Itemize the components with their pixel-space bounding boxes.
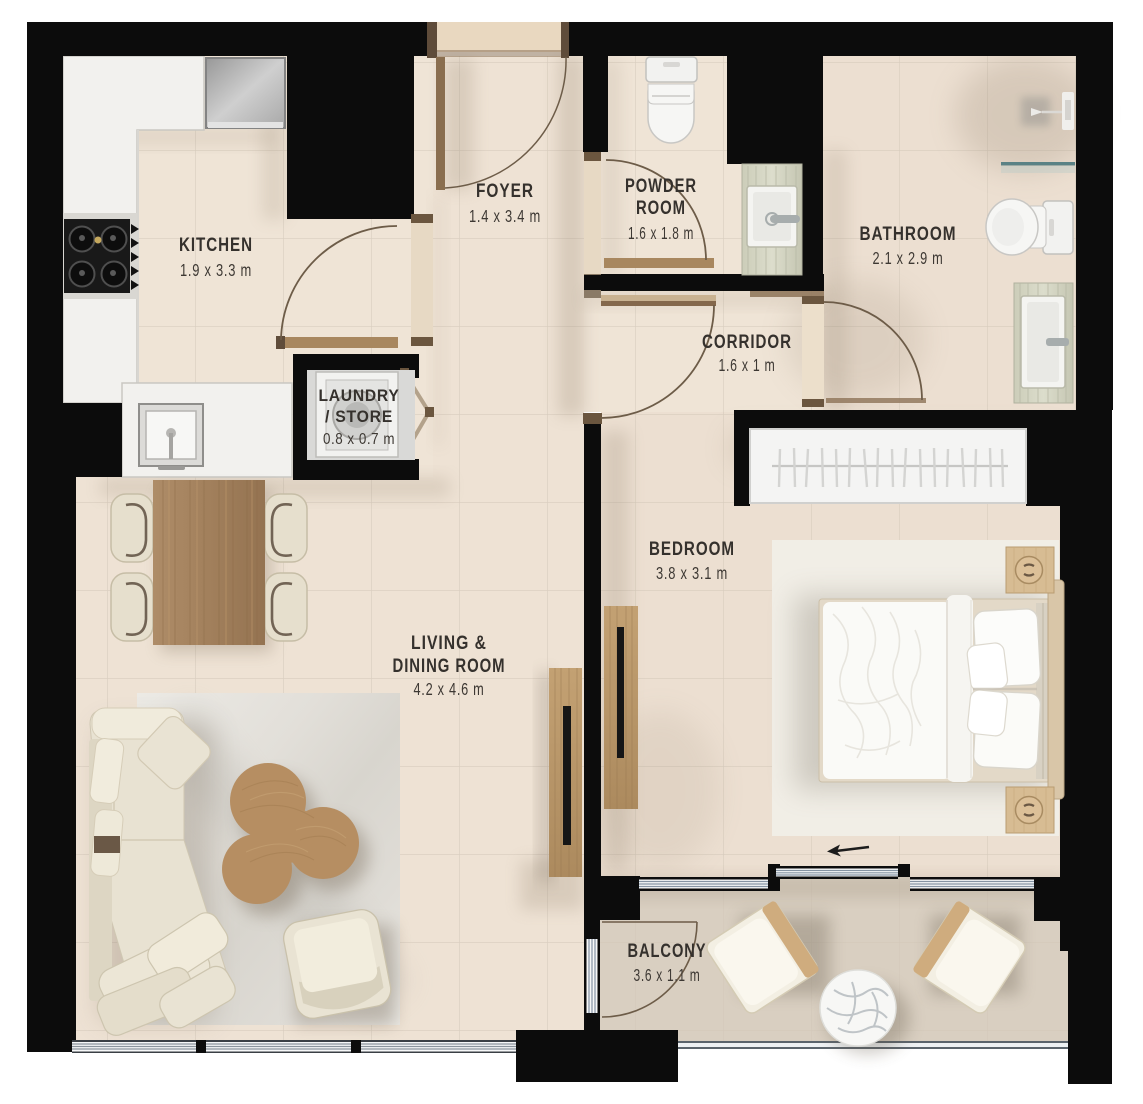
- svg-text:DINING ROOM: DINING ROOM: [393, 656, 506, 677]
- svg-text:ROOM: ROOM: [636, 198, 686, 219]
- svg-text:3.6 x 1.1 m: 3.6 x 1.1 m: [634, 965, 701, 985]
- svg-text:FOYER: FOYER: [476, 181, 534, 202]
- svg-text:1.9 x 3.3 m: 1.9 x 3.3 m: [180, 260, 252, 280]
- svg-text:3.8 x 3.1 m: 3.8 x 3.1 m: [656, 563, 728, 583]
- svg-text:1.4 x 3.4 m: 1.4 x 3.4 m: [469, 206, 541, 226]
- svg-text:0.8 x 0.7 m: 0.8 x 0.7 m: [323, 431, 395, 448]
- svg-text:1.6 x 1.8 m: 1.6 x 1.8 m: [628, 223, 694, 243]
- svg-text:BALCONY: BALCONY: [628, 941, 707, 962]
- svg-text:LAUNDRY: LAUNDRY: [319, 386, 400, 405]
- svg-text:POWDER: POWDER: [625, 176, 697, 197]
- svg-text:CORRIDOR: CORRIDOR: [702, 332, 792, 353]
- svg-text:BATHROOM: BATHROOM: [860, 224, 957, 245]
- svg-text:2.1 x 2.9 m: 2.1 x 2.9 m: [873, 248, 944, 268]
- svg-text:1.6 x 1 m: 1.6 x 1 m: [719, 355, 776, 375]
- svg-text:LIVING &: LIVING &: [411, 633, 487, 654]
- svg-text:/ STORE: / STORE: [325, 407, 393, 426]
- svg-text:BEDROOM: BEDROOM: [649, 539, 735, 560]
- svg-text:KITCHEN: KITCHEN: [179, 235, 253, 256]
- svg-text:4.2 x 4.6 m: 4.2 x 4.6 m: [414, 679, 485, 699]
